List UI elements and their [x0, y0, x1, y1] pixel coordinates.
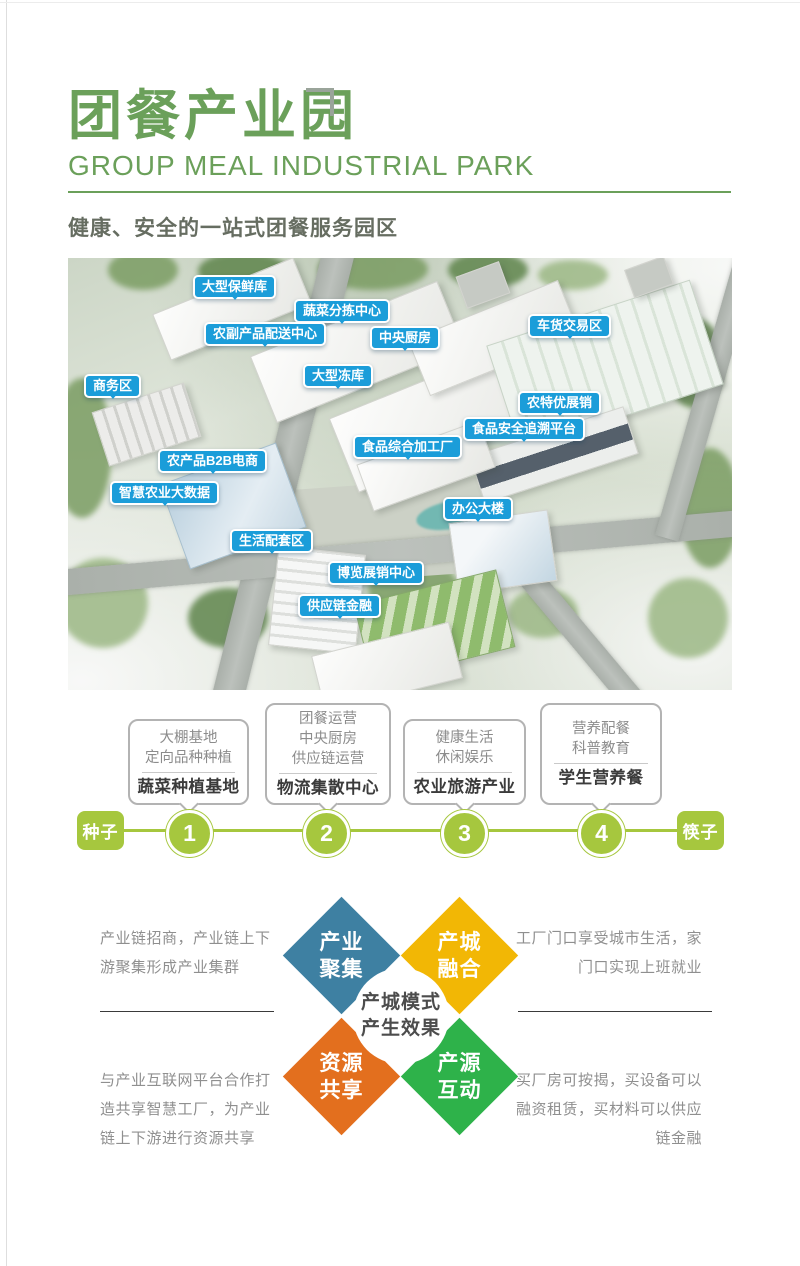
center-line: 产生效果 [361, 1016, 441, 1042]
diamond-label-line: 共享 [320, 1079, 364, 1102]
timeline-step-number: 4 [578, 810, 625, 857]
effects-center-circle: 产城模式 产生效果 [353, 968, 449, 1064]
diamond-label: 资源 共享 [320, 1050, 364, 1104]
diamond-label-line: 产业 [320, 931, 364, 954]
poster-page: { "header": { "title": "团餐产业园", "subtitl… [0, 0, 800, 1266]
timeline-step-number: 1 [166, 810, 213, 857]
diamond-label: 产业 聚集 [320, 929, 364, 983]
map-label: 大型冻库 [303, 364, 373, 388]
step-title: 蔬菜种植基地 [136, 776, 241, 798]
note-city-integration: 工厂门口享受城市生活，家门口实现上班就业 [508, 924, 702, 982]
map-label: 食品综合加工厂 [353, 435, 462, 459]
map-label: 生活配套区 [230, 529, 313, 553]
timeline-step-bubble: 营养配餐 科普教育 学生营养餐 [540, 703, 662, 805]
diamond-label-line: 产城 [438, 931, 482, 954]
diamond-label-line: 资源 [320, 1052, 364, 1075]
step-divider [554, 763, 648, 764]
step-divider [279, 773, 377, 774]
step-sub: 健康生活 [411, 728, 518, 748]
step-sub: 团餐运营 [273, 709, 383, 729]
timeline-step-bubble: 大棚基地 定向品种种植 蔬菜种植基地 [128, 719, 249, 805]
center-line: 产城模式 [361, 990, 441, 1016]
step-title: 农业旅游产业 [411, 776, 518, 798]
note-divider-left [100, 1011, 274, 1012]
note-divider-right [518, 1011, 712, 1012]
step-sub: 供应链运营 [273, 749, 383, 769]
map-label: 车货交易区 [528, 314, 611, 338]
tagline: 健康、安全的一站式团餐服务园区 [68, 212, 398, 242]
map-label: 食品安全追溯平台 [463, 417, 585, 441]
map-label: 农特优展销 [518, 391, 601, 415]
map-label: 智慧农业大数据 [110, 481, 219, 505]
timeline-start-badge: 种子 [77, 811, 124, 850]
diamond-label: 产源 互动 [438, 1050, 482, 1104]
page-edge-line [6, 0, 7, 1266]
map-label: 大型保鲜库 [193, 275, 276, 299]
step-sub: 定向品种种植 [136, 748, 241, 768]
step-divider [417, 772, 512, 773]
map-label: 蔬菜分拣中心 [294, 299, 390, 323]
tree-cluster [648, 578, 728, 658]
header-divider [68, 191, 731, 193]
tree-cluster [108, 258, 178, 290]
page-edge-line-top [0, 2, 800, 3]
step-title: 学生营养餐 [548, 767, 654, 789]
timeline-step-bubble: 团餐运营 中央厨房 供应链运营 物流集散中心 [265, 703, 391, 805]
step-sub: 中央厨房 [273, 729, 383, 749]
map-label: 中央厨房 [370, 326, 440, 350]
page-title-english: GROUP MEAL INDUSTRIAL PARK [68, 150, 534, 182]
map-label: 商务区 [84, 374, 141, 398]
step-sub: 大棚基地 [136, 728, 241, 748]
diamond-label-line: 产源 [438, 1052, 482, 1075]
step-divider [142, 772, 235, 773]
note-resource-sharing: 与产业互联网平台合作打造共享智慧工厂，为产业链上下游进行资源共享 [100, 1066, 282, 1153]
diamond-label-line: 聚集 [320, 958, 364, 981]
corner-bracket-icon [306, 88, 334, 116]
diamond-label: 产城 融合 [438, 929, 482, 983]
diamond-label-line: 互动 [438, 1079, 482, 1102]
step-sub: 营养配餐 [548, 719, 654, 739]
timeline-step-bubble: 健康生活 休闲娱乐 农业旅游产业 [403, 719, 526, 805]
step-title: 物流集散中心 [273, 777, 383, 799]
park-aerial-photo: 大型保鲜库 蔬菜分拣中心 农副产品配送中心 中央厨房 大型冻库 商务区 车货交易… [68, 258, 732, 690]
note-supply-finance: 买厂房可按揭，买设备可以融资租赁，买材料可以供应链金融 [506, 1066, 702, 1153]
note-industry-cluster: 产业链招商，产业链上下游聚集形成产业集群 [100, 924, 280, 982]
map-label: 农副产品配送中心 [204, 322, 326, 346]
map-label: 办公大楼 [443, 497, 513, 521]
diamond-label-line: 融合 [438, 958, 482, 981]
timeline-step-number: 3 [441, 810, 488, 857]
map-label: 供应链金融 [298, 594, 381, 618]
timeline-step-number: 2 [303, 810, 350, 857]
step-sub: 休闲娱乐 [411, 748, 518, 768]
timeline-end-badge: 筷子 [677, 811, 724, 850]
step-sub: 科普教育 [548, 739, 654, 759]
map-label: 博览展销中心 [328, 561, 424, 585]
map-label: 农产品B2B电商 [158, 449, 267, 473]
